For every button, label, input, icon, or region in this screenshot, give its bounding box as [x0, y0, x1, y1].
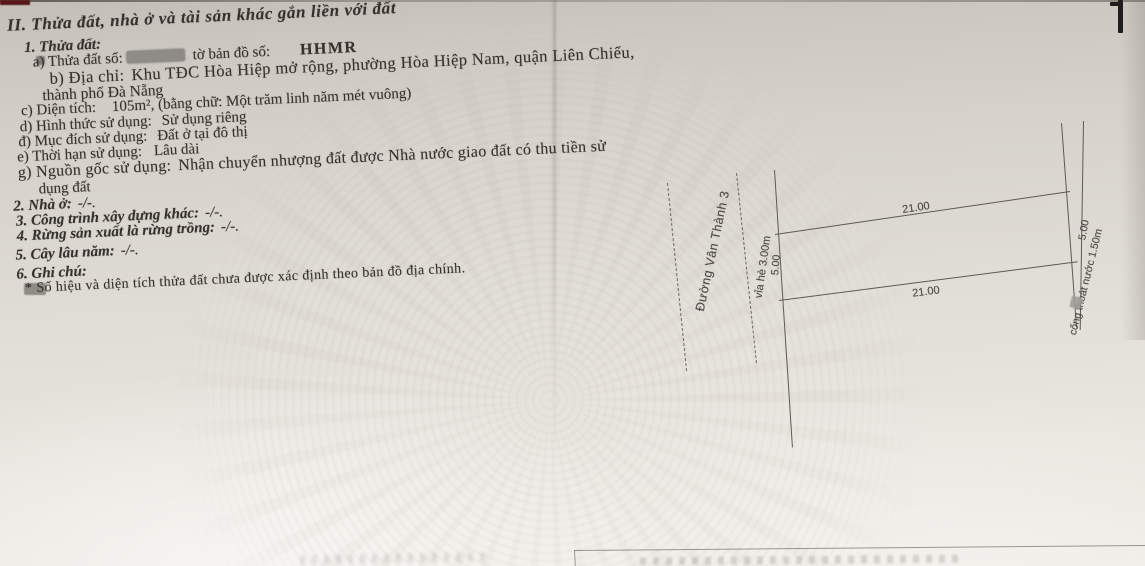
ink-mark-stem — [1118, 0, 1123, 33]
use-origin-value: Nhận chuyển nhượng đất được Nhà nước gia… — [178, 138, 607, 174]
perennial-value: -/-. — [120, 242, 139, 259]
note-text: * Số hiệu và diện tích thửa đất chưa đượ… — [25, 261, 466, 297]
faint-cutoff-text — [640, 555, 960, 566]
perennial-label: 5. Cây lâu năm: — [15, 243, 115, 263]
paper-right-shadow — [1121, 0, 1145, 340]
scanned-land-certificate-page: II. Thửa đất, nhà ở và tài sản khác gắn … — [0, 0, 1145, 566]
perennial-line: 5. Cây lâu năm:-/-. — [15, 242, 139, 265]
forest-value: -/-. — [221, 218, 240, 235]
section-heading: II. Thửa đất, nhà ở và tài sản khác gắn … — [7, 0, 397, 36]
redaction-bar — [126, 49, 184, 64]
use-purpose-value: Đất ở tại đô thị — [157, 124, 248, 144]
